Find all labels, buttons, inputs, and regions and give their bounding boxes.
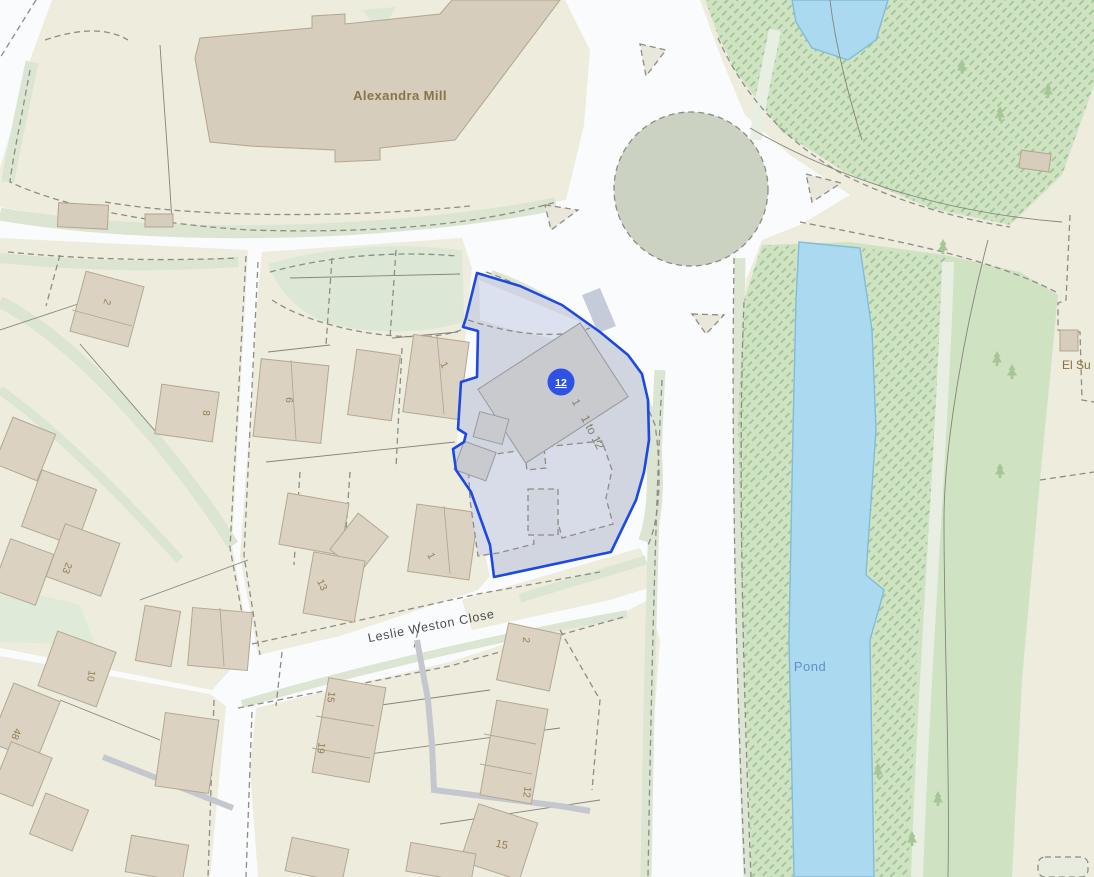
house-number: 12 xyxy=(520,786,533,799)
house-number: 15 xyxy=(324,691,337,704)
substation-label: El Su xyxy=(1062,358,1091,372)
house xyxy=(188,607,253,670)
mill-label: Alexandra Mill xyxy=(353,88,447,103)
house-number: 19 xyxy=(314,742,327,755)
map-canvas[interactable]: Alexandra Mill Leslie Weston Close Pond … xyxy=(0,0,1094,877)
house xyxy=(408,504,479,580)
house-number: 15 xyxy=(495,838,509,852)
svg-text:12: 12 xyxy=(555,377,567,389)
substation-building xyxy=(1060,330,1078,351)
pond-label: Pond xyxy=(794,659,826,674)
map-view[interactable]: Alexandra Mill Leslie Weston Close Pond … xyxy=(0,0,1094,877)
selected-property-marker[interactable]: 12 xyxy=(548,369,575,396)
